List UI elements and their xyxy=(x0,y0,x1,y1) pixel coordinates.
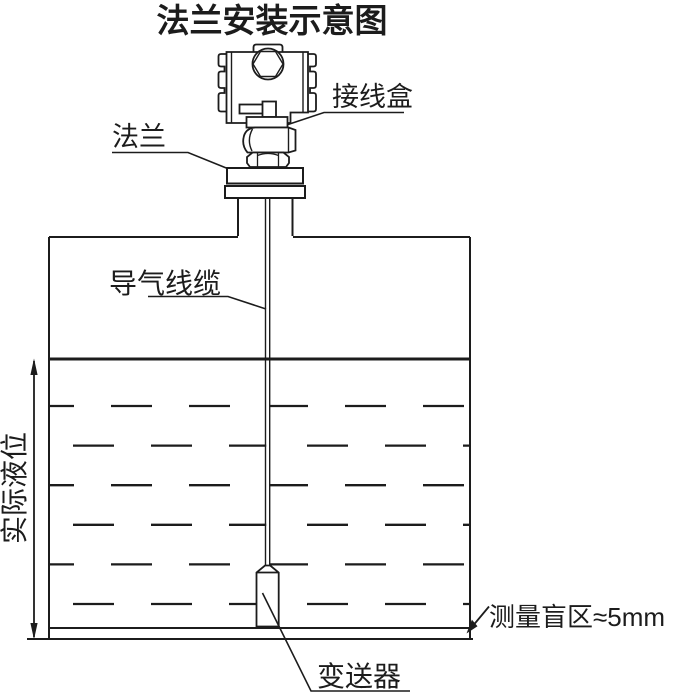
air-cable-label: 导气线缆 xyxy=(109,268,221,299)
dimension-arrow-down xyxy=(30,623,37,640)
flange-plates xyxy=(225,168,305,198)
sight-glass-dome xyxy=(253,49,284,80)
flange-leader-line xyxy=(112,153,228,169)
tank-outline xyxy=(27,237,473,639)
terminal-block xyxy=(240,105,265,114)
transmitter-head xyxy=(219,45,317,168)
hex-nut xyxy=(247,153,289,168)
left-conduit-tabs xyxy=(219,54,227,112)
junction-box-label: 接线盒 xyxy=(332,82,413,112)
diagram-title: 法兰安装示意图 xyxy=(157,2,388,39)
flange-label: 法兰 xyxy=(112,122,166,152)
dimension-arrow-up xyxy=(30,359,37,376)
right-conduit-tabs xyxy=(308,54,316,112)
air-guide-cable xyxy=(266,198,270,566)
junction-box-leader-line xyxy=(288,113,404,125)
diagram-page: 法兰安装示意图 接线盒 法兰 导气线缆 实际液位 变送器 测量盲区≈5mm xyxy=(0,0,700,700)
level-dimension xyxy=(30,359,37,640)
actual-level-label: 实际液位 xyxy=(0,432,30,544)
terminal-block-small xyxy=(263,102,277,118)
elbow-top-plate xyxy=(247,117,288,128)
transmitter-label: 变送器 xyxy=(317,661,401,692)
flange-installation-diagram: 法兰安装示意图 接线盒 法兰 导气线缆 实际液位 变送器 测量盲区≈5mm xyxy=(0,0,700,700)
blind-zone-label: 测量盲区≈5mm xyxy=(489,602,665,632)
